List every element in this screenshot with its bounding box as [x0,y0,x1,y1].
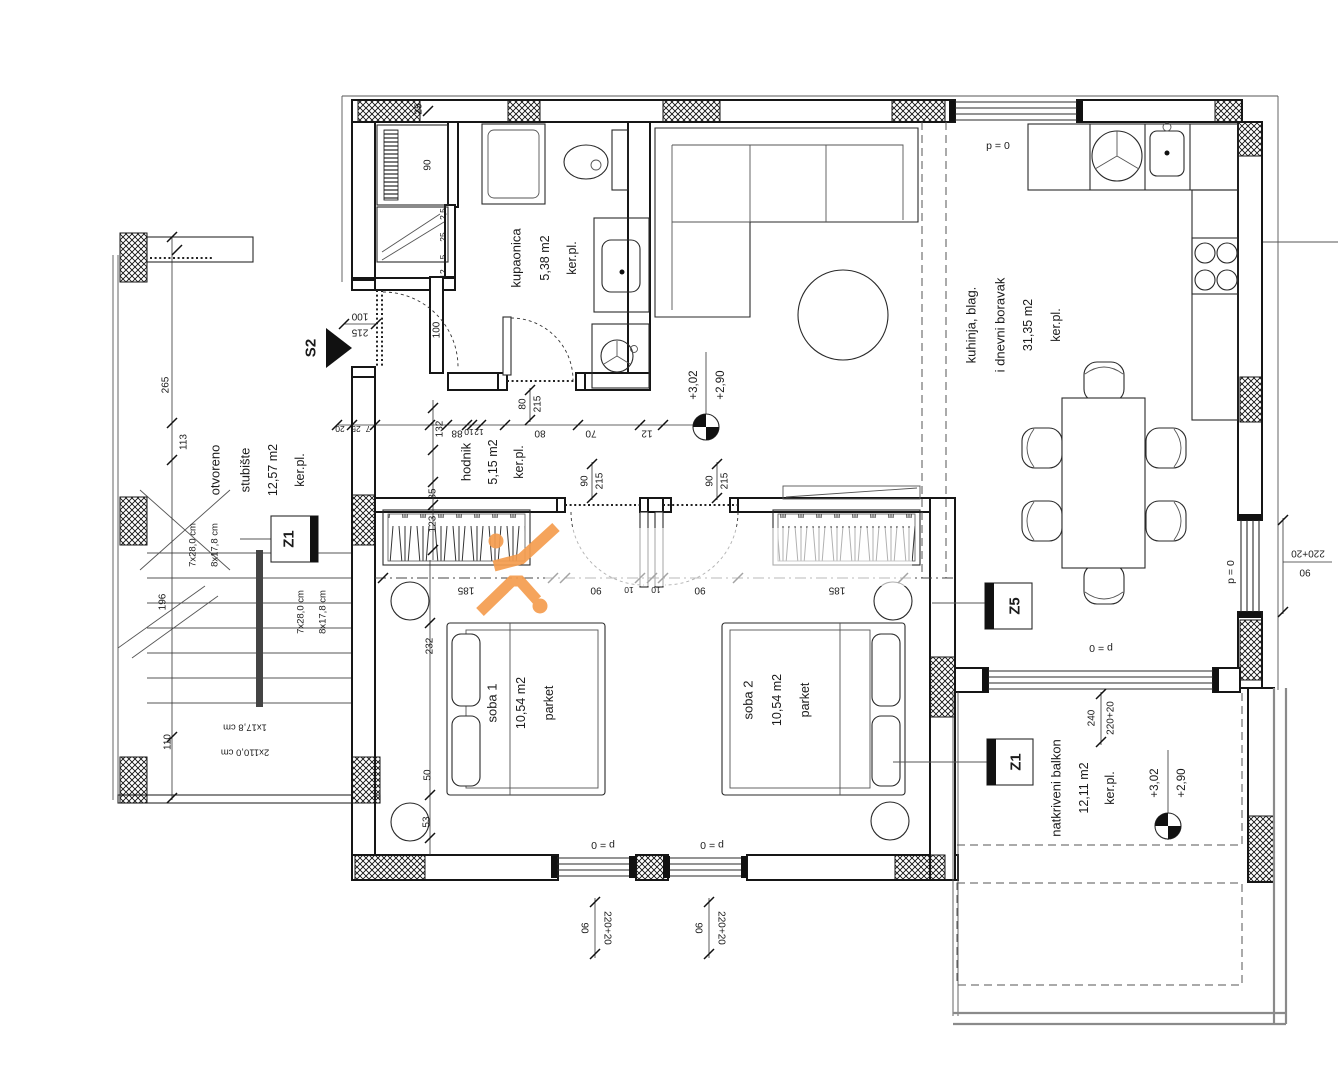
coffee-table [798,270,888,360]
svg-text:10,54 m2: 10,54 m2 [770,674,784,726]
svg-text:25: 25 [351,424,361,434]
svg-text:88: 88 [451,428,463,439]
svg-text:+3,02: +3,02 [1149,768,1161,797]
svg-text:7: 7 [365,424,370,434]
svg-text:90: 90 [579,922,590,934]
svg-text:ker.pl.: ker.pl. [1103,771,1117,804]
column [1215,100,1242,122]
svg-text:2x110,0 cm: 2x110,0 cm [221,747,269,758]
svg-text:parket: parket [798,682,812,717]
stair-stringer [256,550,263,707]
watermark-band [545,528,912,586]
svg-text:25: 25 [438,232,448,242]
svg-text:215: 215 [595,472,606,489]
column [663,100,720,122]
svg-text:220+20: 220+20 [1106,701,1117,735]
svg-text:12: 12 [641,428,653,439]
z5-label: Z5 [1007,597,1024,615]
z1-stairs-label: Z1 [281,530,298,548]
nightstand [871,802,909,840]
pillow [872,716,900,786]
svg-text:50: 50 [423,769,434,781]
balcony-name: natkriveni balkon [1049,739,1064,837]
svg-text:ker.pl.: ker.pl. [1049,308,1063,341]
svg-text:53: 53 [422,816,433,828]
svg-text:220+20: 220+20 [602,911,613,945]
svg-text:113: 113 [179,434,190,450]
column [930,657,955,717]
svg-text:31,35 m2: 31,35 m2 [1021,299,1035,351]
svg-text:100: 100 [432,321,443,338]
svg-text:185: 185 [457,585,474,596]
svg-text:12,57 m2: 12,57 m2 [266,444,280,496]
column [1240,620,1262,680]
svg-text:+2,90: +2,90 [715,370,727,399]
svg-text:10: 10 [624,585,634,595]
svg-text:+3,02: +3,02 [688,370,700,399]
svg-text:12: 12 [474,427,484,437]
svg-text:p = 0: p = 0 [700,839,724,851]
column [892,100,945,122]
svg-text:90: 90 [590,585,602,596]
svg-text:265: 265 [161,376,172,393]
svg-text:70: 70 [585,428,597,439]
svg-text:10: 10 [651,585,661,595]
svg-text:i dnevni boravak: i dnevni boravak [993,277,1008,372]
svg-text:10: 10 [464,427,474,437]
svg-text:215: 215 [533,395,544,412]
svg-text:1x17,8 cm: 1x17,8 cm [223,722,267,733]
floor-plan-drawing: S2 Z1 Z5 Z1 +3,02 +2,90 +3,02 +2,90 otv [0,0,1342,1080]
svg-text:ker.pl.: ker.pl. [512,445,526,478]
svg-text:ker.pl.: ker.pl. [565,241,579,274]
nightstand [391,582,429,620]
bathroom-name: kupaonica [509,228,524,288]
column [358,100,420,122]
svg-text:+2,90: +2,90 [1176,768,1188,797]
svg-text:12,11 m2: 12,11 m2 [1077,762,1091,813]
svg-text:215: 215 [720,472,731,489]
section-label: S2 [303,339,320,357]
room1-name: soba 1 [485,683,500,722]
svg-text:stubište: stubište [238,448,253,493]
column [1248,816,1274,882]
svg-text:p = 0: p = 0 [1225,560,1237,584]
column [352,495,375,545]
svg-text:132: 132 [435,420,446,437]
column [1238,122,1262,156]
svg-text:5,15 m2: 5,15 m2 [486,439,500,484]
svg-text:5,38 m2: 5,38 m2 [538,235,552,280]
column [895,855,945,880]
svg-text:90: 90 [705,475,716,487]
svg-text:35: 35 [428,488,439,500]
column [1240,377,1262,422]
hallway-name: hodnik [459,442,474,481]
column [120,233,147,282]
landing-beam [147,237,253,262]
z1-balcony-label: Z1 [1008,753,1025,771]
svg-text:232: 232 [425,637,436,654]
svg-text:220+20: 220+20 [1291,548,1325,559]
closet-shelf-strip [384,130,398,200]
room2-name: soba 2 [741,680,756,719]
svg-text:80: 80 [518,398,529,410]
svg-text:8x17,8 cm: 8x17,8 cm [318,590,329,634]
column [355,855,425,880]
svg-text:215: 215 [351,327,368,338]
pillow [452,634,480,706]
svg-text:parket: parket [542,685,556,720]
svg-text:90: 90 [423,159,434,171]
svg-text:8x17,8 cm: 8x17,8 cm [210,523,221,567]
nightstand [874,582,912,620]
svg-text:2,5: 2,5 [438,208,448,220]
svg-text:10,54 m2: 10,54 m2 [514,677,528,729]
column [352,757,375,803]
svg-text:90: 90 [693,922,704,934]
svg-text:25: 25 [414,103,425,115]
pillow [452,716,480,786]
svg-text:5: 5 [438,254,448,259]
staircase-name: otvoreno [208,445,223,496]
svg-text:p = 0: p = 0 [1089,642,1113,654]
column [120,497,147,545]
svg-text:90: 90 [694,585,706,596]
svg-text:90: 90 [1299,567,1311,578]
svg-text:185: 185 [828,585,845,596]
svg-text:240: 240 [1087,709,1098,726]
svg-text:12: 12 [438,269,448,279]
svg-text:196: 196 [158,593,169,610]
svg-text:123: 123 [428,515,439,532]
living-name: kuhinja, blag. [964,287,979,364]
svg-text:90: 90 [580,475,591,487]
floor-plan-page: S2 Z1 Z5 Z1 +3,02 +2,90 +3,02 +2,90 otv [0,0,1342,1080]
parapet-top: p = 0 [986,140,1010,152]
svg-text:ker.pl.: ker.pl. [293,453,307,486]
svg-text:7x28,0 cm: 7x28,0 cm [296,590,307,634]
dining-table [1062,398,1145,568]
column [120,757,147,803]
svg-text:110: 110 [163,734,174,750]
svg-text:220+20: 220+20 [716,911,727,945]
column [508,100,540,122]
svg-text:p = 0: p = 0 [591,839,615,851]
svg-text:100: 100 [351,311,368,322]
svg-text:20: 20 [335,424,345,434]
svg-text:7x28,0 cm: 7x28,0 cm [188,523,199,567]
pillow [872,634,900,706]
svg-text:80: 80 [534,428,546,439]
